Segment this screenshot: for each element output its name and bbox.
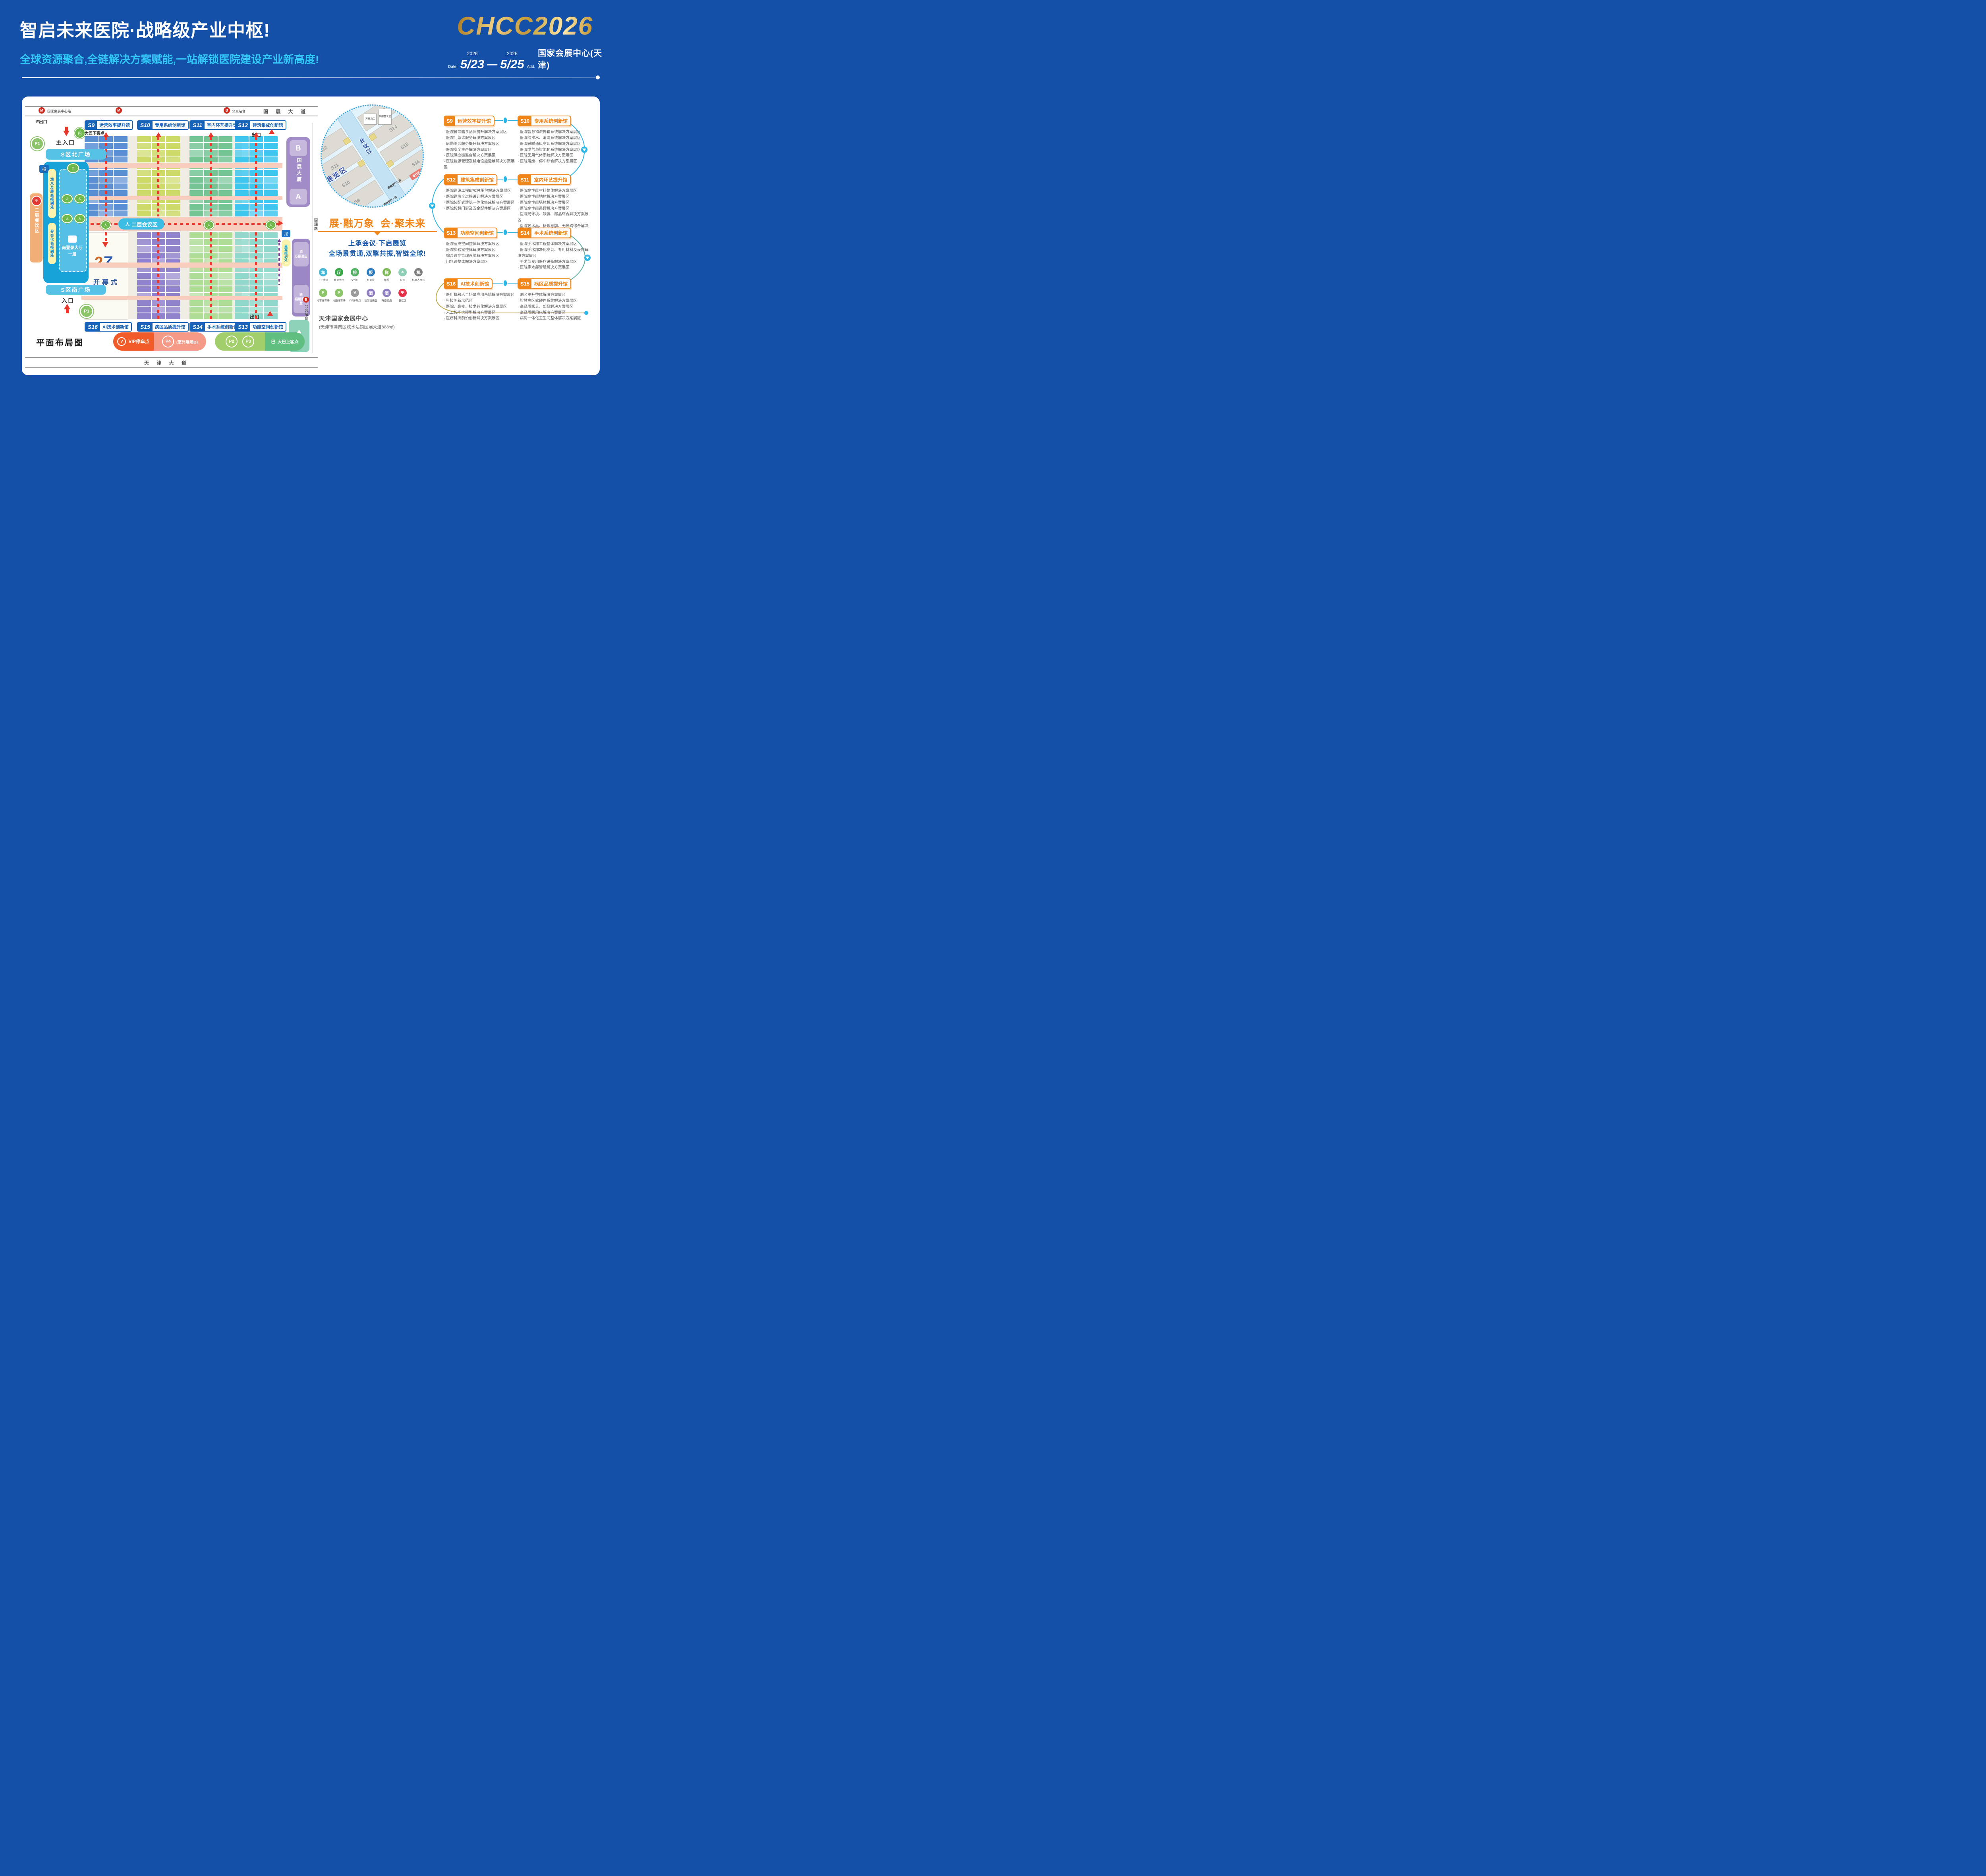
hall-group-badge-S11: S11室内环艺提升馆 <box>518 174 571 185</box>
p1-parking-icon: P1 <box>31 137 44 151</box>
tower-name: 国展大厦 <box>296 158 303 183</box>
group-badge-name: 专用系统创新馆 <box>531 116 570 125</box>
bottom-road-name: 天 津 大 道 <box>144 359 189 366</box>
booth <box>235 307 249 313</box>
group-list-S9: 医院餐饮膳食品质提升解决方案展区医院门急诊服务解决方案展区后勤综合服务提升解决方… <box>444 129 518 171</box>
visitor-registration-label: 观众及展商报到处 <box>48 169 56 218</box>
exhibit-zone-item: 医院手术部智慧解决方案展区 <box>518 265 591 271</box>
legend-item: 酒万豪酒店 <box>380 289 393 302</box>
booth <box>189 210 203 216</box>
dining-fork-icon: Ψ <box>31 196 42 206</box>
booth <box>137 273 151 279</box>
group-badge-id: S9 <box>444 116 455 125</box>
exhibit-zone-item: 医院门急诊服务解决方案展区 <box>444 135 518 141</box>
registration-desk-icon: 报 <box>282 230 290 237</box>
exhibit-zone-item: 医院手术部净化空调、专用材料及设施解决方案展区 <box>518 247 591 259</box>
exhibit-zone-item: 医院高性能墙材解决方案展区 <box>518 200 591 206</box>
exhibit-zone-item: 医院医用气体系统解决方案展区 <box>518 153 591 159</box>
exhibit-zone-item: 医院建设工程EPC总承包解决方案展区 <box>444 188 518 194</box>
year-1: 2026 <box>467 51 478 56</box>
booth <box>189 136 203 142</box>
legend-item: 厅登录大厅 <box>332 268 346 282</box>
group-list-S13: 医院医技空间整体解决方案展区医院实验室整体解决方案展区综合诊疗管理系统解决方案展… <box>444 241 518 265</box>
hall-group-S13: S13功能空间创新馆医院医技空间整体解决方案展区医院实验室整体解决方案展区综合诊… <box>444 228 518 265</box>
booth <box>114 143 128 149</box>
zone-band <box>81 262 282 268</box>
hall-badge-id: S12 <box>236 121 250 129</box>
booth <box>189 183 203 189</box>
group-badge-id: S10 <box>518 116 531 125</box>
hall-badge-id: S9 <box>85 121 97 129</box>
booth <box>137 286 151 292</box>
booth <box>137 190 151 196</box>
dining-strip-label: 二层餐饮区 <box>33 208 40 234</box>
group-list-S15: 病区提升整体解决方案展区智慧病区软硬件系统解决方案展区高品质家具、部品解决方案展… <box>518 292 591 322</box>
booth <box>166 273 180 279</box>
legend-item: 酒福朋喜来登 <box>364 289 377 302</box>
booth <box>166 136 180 142</box>
stairs-icon: 人 <box>266 220 276 230</box>
legend-item: P地面停车场 <box>332 289 346 302</box>
booth <box>235 300 249 306</box>
booth <box>218 246 232 252</box>
legend-label: 地下停车场 <box>317 298 330 302</box>
booth <box>218 286 232 292</box>
booth <box>189 313 203 319</box>
vip-parking-icon: V <box>351 289 359 297</box>
exhibit-zone-item: 医院能源管理及机电设施运维解决方案展区 <box>444 159 518 171</box>
exhibit-zone-item: 后勤综合服务提升解决方案展区 <box>444 141 518 147</box>
p1-parking-icon: P1 <box>80 305 93 318</box>
exit-north-arrow <box>269 129 274 134</box>
booth <box>166 190 180 196</box>
booth <box>114 183 128 189</box>
hall-badge-name: 建筑集成创新馆 <box>250 121 286 129</box>
exhibit-zone-item: 医院智慧物流传输系统解决方案展区 <box>518 129 591 135</box>
underground-parking-icon: P <box>319 289 327 297</box>
purple-route-arrow <box>277 239 281 242</box>
hall-group-S10: S10专用系统创新馆医院智慧物流传输系统解决方案展区医院给排水、消防系统解决方案… <box>518 116 591 165</box>
booth <box>166 253 180 259</box>
route-arrow-down <box>102 242 108 247</box>
booth <box>137 307 151 313</box>
hall-badge-id: S10 <box>138 121 153 129</box>
exhibit-zone-item: 医院高性能材料整体解决方案展区 <box>518 188 591 194</box>
booth <box>189 232 203 238</box>
exhibit-zone-item: 医院建筑全过程设计解决方案展区 <box>444 194 518 200</box>
vip-parking-pill: V VIP停车点 <box>113 332 154 351</box>
booth <box>166 183 180 189</box>
exhibit-zone-item: 病房一体化卫生间整体解决方案展区 <box>518 316 591 322</box>
hall-badge-name: 专用系统创新馆 <box>153 121 188 129</box>
bus-platform-label: 公交站台 <box>232 109 245 114</box>
booth <box>235 232 249 238</box>
hall-group-badge-S13: S13功能空间创新馆 <box>444 228 497 238</box>
hall-group-S16: S16AI技术创新馆医用机器人全场景应用系统解决方案展区科技创新示范区医院、高校… <box>444 278 518 322</box>
bubble-marriott-tower: 万豪酒店 <box>364 114 377 125</box>
bus-platform2-label: 公交站台 <box>304 305 309 320</box>
booth <box>166 210 180 216</box>
entrance-label: 入口 <box>62 297 74 305</box>
legend-item: 机机器人展区 <box>412 268 425 282</box>
stairs-icon: 人 <box>74 214 85 223</box>
booth <box>189 177 203 183</box>
route-dash <box>157 232 159 319</box>
booth <box>264 246 278 252</box>
group-badge-id: S11 <box>518 175 531 184</box>
p4-outdoor-pill: P4 (室外展场B) <box>154 332 206 351</box>
exhibit-zone-item: 医院高性能吊顶解决方案展区 <box>518 206 591 212</box>
group-badge-id: S13 <box>444 228 458 237</box>
booth <box>166 156 180 162</box>
booth <box>166 170 180 176</box>
legend-item: 车上下客区 <box>317 268 330 282</box>
booth <box>264 300 278 306</box>
hall-badge-S11: S11室内环艺提升馆 <box>189 120 241 130</box>
booth <box>264 280 278 286</box>
legend-label: 公园 <box>400 278 405 282</box>
booth <box>218 313 232 319</box>
exhibit-zone-item: 手术部专用医疗设备解决方案展区 <box>518 259 591 265</box>
booth <box>166 143 180 149</box>
header-divider <box>22 77 597 78</box>
exhibit-zone-item: 医院实验室整体解决方案展区 <box>444 247 518 253</box>
hall-badge-name: 功能空间创新馆 <box>250 323 286 331</box>
legend-label: 上下客区 <box>318 278 328 282</box>
booth <box>114 156 128 162</box>
route-dash <box>210 137 212 216</box>
meeting-zone-label: 二层会议区 <box>131 220 157 228</box>
group-badge-name: 室内环艺提升馆 <box>531 175 570 184</box>
sheraton-hotel-icon: 酒 <box>367 289 375 297</box>
booth <box>218 280 232 286</box>
metro-station-label: 国家会展中心站 <box>47 109 71 114</box>
booth <box>218 204 232 210</box>
route-dash <box>105 137 107 216</box>
booth <box>166 204 180 210</box>
exhibit-zone-item: 医院给排水、消防系统解决方案展区 <box>518 135 591 141</box>
booth <box>218 177 232 183</box>
route-dash <box>255 137 257 216</box>
group-badge-id: S15 <box>518 279 531 288</box>
group-list-S16: 医用机器人全场景应用系统解决方案展区科技创新示范区医院、高校、技术转化解决方案展… <box>444 292 518 322</box>
p2-icon: P2 <box>226 336 238 347</box>
route-arrow-up <box>208 132 214 137</box>
booth <box>137 313 151 319</box>
route-dash <box>210 232 212 319</box>
zone-band <box>81 196 282 200</box>
legend-item: 检安检区 <box>348 268 361 282</box>
dining-icon: Ψ <box>398 289 407 297</box>
exhibit-zone-item: 医院污废、停车综合解决方案展区 <box>518 159 591 165</box>
booth <box>218 156 232 162</box>
route-dash <box>105 232 107 241</box>
exhibit-zone-item: 医院智慧门窗及五金配件解决方案展区 <box>444 206 518 212</box>
exhibit-zone-item: 医院安全生产解决方案展区 <box>444 147 518 153</box>
hall-group-S12: S12建筑集成创新馆医院建设工程EPC总承包解决方案展区医院建筑全过程设计解决方… <box>444 174 518 212</box>
group-badge-id: S14 <box>518 228 531 237</box>
group-badge-name: AI技术创新馆 <box>458 279 492 288</box>
venue-short: 国家会展中心(天津) <box>538 47 612 71</box>
tagline-1: 上承会议·下启展览 <box>318 238 437 247</box>
hall-badge-name: 运营效率提升馆 <box>97 121 132 129</box>
booth <box>235 190 249 196</box>
road-line <box>25 106 318 107</box>
robot-zone-icon: 机 <box>414 268 423 276</box>
bus-drop-label: 大巴下客点 <box>85 130 104 136</box>
booth <box>235 286 249 292</box>
bus-pickup-pill: 巴大巴上客点 <box>265 332 305 351</box>
booth <box>166 177 180 183</box>
booth <box>189 143 203 149</box>
booth <box>218 232 232 238</box>
booth <box>166 307 180 313</box>
booth <box>85 136 99 142</box>
aerial-map-bubble: S12S11S10S9S13S14S15S16 会议区 展览区 主入口 南登录厅… <box>321 104 424 208</box>
booth <box>189 307 203 313</box>
stairs-icon: 人 <box>62 194 73 203</box>
legend-item: VVIP停车点 <box>348 289 361 302</box>
header-divider-dot <box>596 75 600 79</box>
exhibit-zone-item: 医院、高校、技术转化解决方案展区 <box>444 304 518 310</box>
route-dash <box>255 232 257 319</box>
legend-label: 机器人展区 <box>412 278 425 282</box>
booth <box>189 273 203 279</box>
main-panel: M 国家会展中心站 M B 公交站台 国 展 大 道 E出口 F出口 S9运营效… <box>22 97 600 375</box>
exhibit-zone-item: 医院医技空间整体解决方案展区 <box>444 241 518 247</box>
bus-stop-icon: B <box>303 297 309 303</box>
booth <box>264 170 278 176</box>
hotel-icon: 酒 <box>299 293 303 297</box>
chcc-logo: CHCC2026 <box>457 11 593 41</box>
tower-a: A <box>290 189 307 205</box>
legend-label: 登录大厅 <box>334 278 344 282</box>
booth <box>218 170 232 176</box>
park-icon: ♣ <box>398 268 407 276</box>
security-gate-icon: ∏ <box>67 163 79 173</box>
booth <box>264 190 278 196</box>
booth <box>264 183 278 189</box>
booth <box>264 156 278 162</box>
booth <box>114 150 128 156</box>
hotel-icon: 酒 <box>299 250 303 254</box>
floor-plan-map: M 国家会展中心站 M B 公交站台 国 展 大 道 E出口 F出口 S9运营效… <box>25 99 318 373</box>
booth <box>137 300 151 306</box>
hall-group-S15: S15病区品质提升馆病区提升整体解决方案展区智慧病区软硬件系统解决方案展区高品质… <box>518 278 591 322</box>
p3-icon: P3 <box>242 336 254 347</box>
exhibit-zone-item: 综合诊疗管理系统解决方案展区 <box>444 253 518 259</box>
vip-person-icon: V <box>117 337 126 346</box>
addr-label: Add. <box>527 65 535 71</box>
group-badge-name: 建筑集成创新馆 <box>458 175 496 184</box>
page-subtitle: 全球资源聚合,全链解决方案赋能,一站解锁医院建设产业新高度! <box>20 51 319 66</box>
booth <box>218 183 232 189</box>
booth <box>218 239 232 245</box>
booth <box>114 170 128 176</box>
stairs-icon: 人 <box>74 194 85 203</box>
booth <box>218 300 232 306</box>
group-list-S12: 医院建设工程EPC总承包解决方案展区医院建筑全过程设计解决方案展区医院装配式建筑… <box>444 188 518 212</box>
stairs-icon: 人 <box>100 220 111 230</box>
main-entrance-label: 主入口 <box>56 139 75 147</box>
legend-label: 餐饮区 <box>399 298 407 302</box>
entrance-arrow <box>64 304 70 313</box>
marriott-hotel: 酒万豪酒店 <box>294 242 309 266</box>
hall-badge-S13: S13功能空间创新馆 <box>235 322 286 332</box>
venue-name: 天津国家会展中心 <box>319 314 368 322</box>
p2-p3-pill: P2 P3 <box>215 332 265 351</box>
exit-e-label: E出口 <box>36 119 47 125</box>
hall-group-S14: S14手术系统创新馆医院手术部工程整体解决方案展区医院手术部净化空调、专用材料及… <box>518 228 591 271</box>
right-road-line <box>313 123 313 353</box>
booth <box>137 280 151 286</box>
north-plaza: S区北广场 <box>46 149 106 160</box>
booth <box>235 204 249 210</box>
stairs-icon: 人 <box>204 220 214 230</box>
legend-item: Ψ餐饮区 <box>396 289 409 302</box>
delegate-registration-label: 参会代表报到处 <box>48 223 56 264</box>
booth <box>235 183 249 189</box>
hall-badge-S9: S9运营效率提升馆 <box>85 120 133 130</box>
hall-group-badge-S15: S15病区品质提升馆 <box>518 278 571 289</box>
hall-group-badge-S16: S16AI技术创新馆 <box>444 278 493 289</box>
group-badge-name: 功能空间创新馆 <box>458 228 496 237</box>
hall-badge-S12: S12建筑集成创新馆 <box>235 120 286 130</box>
booth <box>218 136 232 142</box>
login-hall-icon: 厅 <box>335 268 343 276</box>
group-badge-id: S16 <box>444 279 458 288</box>
hall-group-S9: S9运营效率提升馆医院餐饮膳食品质提升解决方案展区医院门急诊服务解决方案展区后勤… <box>444 116 518 171</box>
booth <box>264 253 278 259</box>
registration-icon: 报 <box>367 268 375 276</box>
legend-label: VIP停车点 <box>349 298 361 302</box>
booth <box>235 313 249 319</box>
booth <box>264 177 278 183</box>
booth <box>235 156 249 162</box>
hall-group-badge-S14: S14手术系统创新馆 <box>518 228 571 238</box>
booth <box>218 190 232 196</box>
hall-badge-S14: S14手术系统创新馆 <box>189 322 241 332</box>
security-check-icon: 检 <box>351 268 359 276</box>
exhibit-zone-item: 医院餐饮膳食品质提升解决方案展区 <box>444 129 518 135</box>
legend-label: 阶梯 <box>384 278 389 282</box>
booth <box>166 280 180 286</box>
hall-badge-id: S14 <box>190 323 205 331</box>
booth <box>189 170 203 176</box>
group-badge-name: 运营效率提升馆 <box>455 116 494 125</box>
hall-badge-id: S11 <box>190 121 205 129</box>
booth <box>137 246 151 252</box>
hall-group-badge-S9: S9运营效率提升馆 <box>444 116 495 126</box>
date-dash: — <box>487 58 497 71</box>
booth <box>264 143 278 149</box>
ground-parking-icon: P <box>335 289 343 297</box>
bus-icon: 巴 <box>271 339 276 345</box>
legend-item: P地下停车场 <box>317 289 330 302</box>
hall-group-badge-S12: S12建筑集成创新馆 <box>444 174 497 185</box>
booth <box>189 246 203 252</box>
legend-row-1: 车上下客区厅登录大厅检安检区报报到处梯阶梯♣公园机机器人展区 <box>317 268 425 282</box>
booth <box>166 246 180 252</box>
route-dash <box>157 137 159 216</box>
booth <box>264 210 278 216</box>
p4-icon: P4 <box>162 336 174 347</box>
south-plaza: S区南广场 <box>46 285 106 295</box>
exhibit-zone-item: 医院装配式建筑一体化集成解决方案展区 <box>444 200 518 206</box>
booth <box>218 253 232 259</box>
guest-registration-label: 嘉宾报到处 <box>282 239 290 266</box>
route-arrow-right <box>278 220 283 226</box>
booth <box>235 143 249 149</box>
booth <box>189 239 203 245</box>
booth <box>264 286 278 292</box>
booth <box>166 313 180 319</box>
hall-group-S11: S11室内环艺提升馆医院高性能材料整体解决方案展区医院高性能地材解决方案展区医院… <box>518 174 591 235</box>
marriott-hotel-icon: 酒 <box>383 289 391 297</box>
exit-south-arrow <box>267 311 273 316</box>
purple-route-dash <box>278 243 280 285</box>
booth <box>235 136 249 142</box>
group-list-S14: 医院手术部工程整体解决方案展区医院手术部净化空调、专用材料及设施解决方案展区手术… <box>518 241 591 271</box>
page-title: 智启未来医院·战略级产业中枢! <box>20 16 270 42</box>
booth <box>235 253 249 259</box>
building-icon <box>68 235 77 243</box>
booth <box>137 177 151 183</box>
south-login-hall-label: 南登录大厅一层 <box>59 245 85 258</box>
booth <box>264 150 278 156</box>
bus-stop-icon: B <box>224 107 230 114</box>
booth <box>235 246 249 252</box>
legend-row-2: P地下停车场P地面停车场VVIP停车点酒福朋喜来登酒万豪酒店Ψ餐饮区 <box>317 289 409 302</box>
metro-icon: M <box>39 107 45 114</box>
booth <box>166 300 180 306</box>
legend-item: 报报到处 <box>364 268 377 282</box>
exhibit-zone-item: 医用机器人全场景应用系统解决方案展区 <box>444 292 518 298</box>
booth <box>235 239 249 245</box>
poster-root: { "header": { "title": "智启未来医院·战略级产业中枢!"… <box>0 0 612 408</box>
booth <box>189 190 203 196</box>
group-list-S10: 医院智慧物流传输系统解决方案展区医院给排水、消防系统解决方案展区医院采暖通风空调… <box>518 129 591 165</box>
stairs-icon: 人 <box>62 214 73 223</box>
booth <box>137 143 151 149</box>
exhibit-zone-item: 医院电气与智能化系统解决方案展区 <box>518 147 591 153</box>
exhibit-zone-item: 医院高性能地材解决方案展区 <box>518 194 591 200</box>
date-end: 5/25 <box>500 57 524 71</box>
booth <box>264 273 278 279</box>
legend-label: 地面停车场 <box>332 298 346 302</box>
hall-badge-name: 病区品质提升馆 <box>153 323 188 331</box>
booth <box>137 210 151 216</box>
meeting-people-icon: 人 <box>125 221 129 227</box>
hall-badge-id: S13 <box>236 323 250 331</box>
booth <box>137 232 151 238</box>
booth <box>218 143 232 149</box>
booth <box>264 204 278 210</box>
registration-desk-icon: 报 <box>39 165 49 173</box>
road-line <box>25 367 318 368</box>
metro-icon: M <box>116 107 122 114</box>
tower-b: B <box>290 140 307 156</box>
hall-badge-S15: S15病区品质提升馆 <box>137 322 189 332</box>
exhibit-zone-item: 高品质医用床解决方案展区 <box>518 310 591 316</box>
tagline-2: 全场景贯通,双擎共振,智链全球! <box>311 248 444 258</box>
exhibit-zone-item: 医疗科技前沿创新解决方案展区 <box>444 316 518 322</box>
route-arrow-up <box>156 132 161 137</box>
booth <box>189 156 203 162</box>
exhibit-zone-item: 人工智能大模型解决方案展区 <box>444 310 518 316</box>
booth <box>166 232 180 238</box>
group-badge-name: 病区品质提升馆 <box>531 279 570 288</box>
